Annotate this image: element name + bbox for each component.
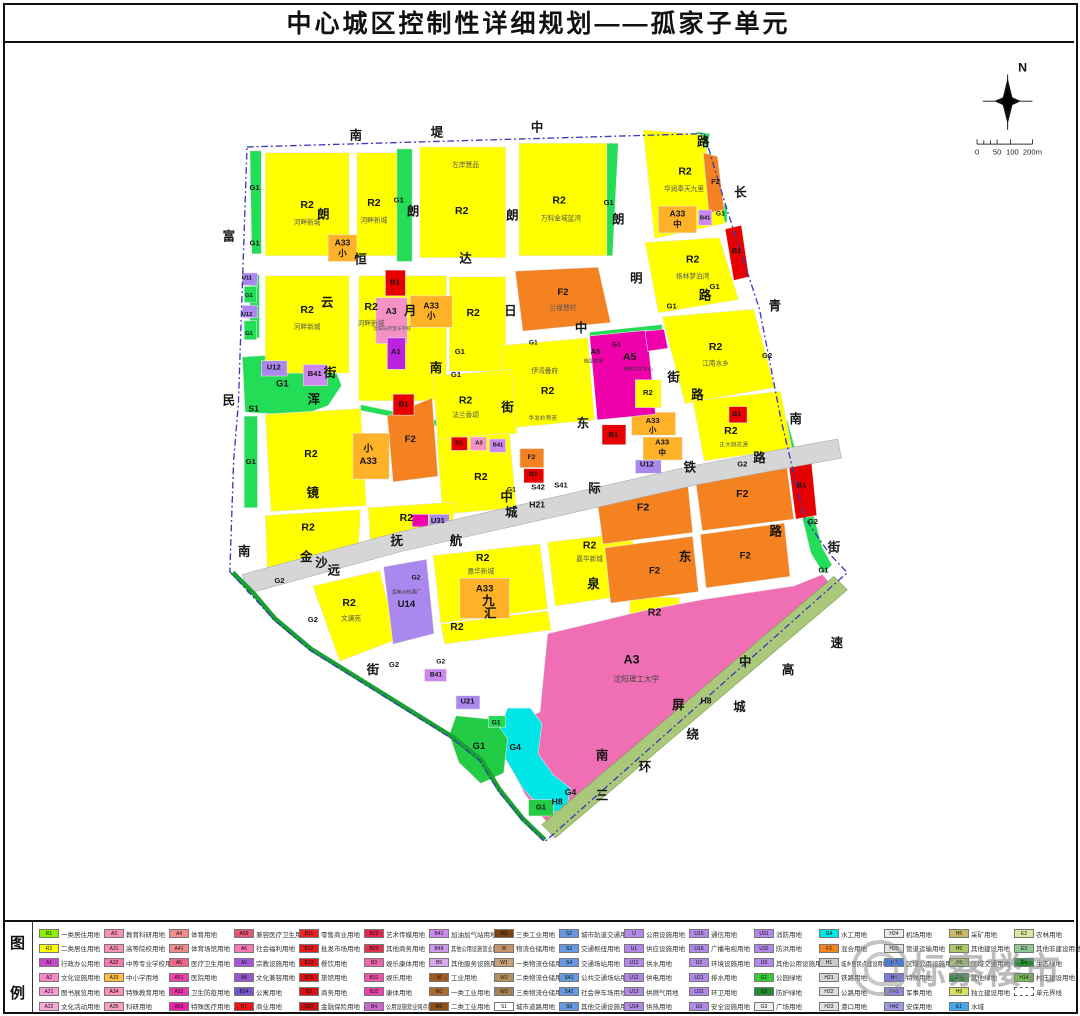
map-label: R2 [678, 167, 692, 178]
legend-swatch: A32 [104, 958, 124, 967]
legend-item: H3区域公用设施用地 [884, 957, 958, 968]
legend-item: G9其他绿地 [949, 972, 997, 983]
legend-swatch: B1 [234, 1002, 254, 1011]
legend-item: H21铁路用地 [819, 972, 867, 983]
legend-label: 安保用地 [906, 1001, 932, 1011]
legend-item: A59兼容医疗卫生用地 [234, 928, 308, 939]
legend-label: 公园绿地 [776, 972, 802, 982]
legend-label: 教育科研用地 [126, 929, 165, 939]
legend-label: 医院用地 [191, 972, 217, 982]
map-label: U12 [242, 312, 253, 318]
legend-swatch: S9 [559, 1002, 579, 1011]
legend-label: 零售商业用地 [321, 929, 360, 939]
legend-label: 交通枢纽用地 [581, 943, 620, 953]
legend-swatch: B22 [364, 929, 384, 938]
map-label: 南 [350, 127, 362, 142]
legend-label: 其他非建设用地 [1036, 943, 1080, 953]
legend-label: 供水用地 [646, 958, 672, 968]
legend-item: H8区域交通用地 [949, 957, 1010, 968]
map-label: G1 [604, 198, 615, 207]
legend-label: 供应设施用地 [646, 943, 685, 953]
map-label: 万科金域蓝湾 [541, 213, 581, 222]
map-label: 浑 [308, 393, 321, 407]
map-label: 华润奉天九里 [664, 184, 704, 193]
map-label: U12 [267, 362, 281, 371]
legend-swatch: A59 [234, 929, 254, 938]
legend-label: 文化设施用地 [61, 972, 100, 982]
legend-item: R2二类居住用地 [39, 943, 100, 954]
map-label: 华发岭秀荟 [529, 414, 558, 422]
map-label: 正大桃花源 [719, 441, 748, 449]
map-label: 东 [577, 416, 589, 431]
legend-label: 一类居住用地 [61, 929, 100, 939]
map-label: B1 [399, 400, 410, 409]
legend-swatch: H1 [819, 958, 839, 967]
legend-item: S9其他交通设施用地 [559, 1001, 633, 1012]
legend-swatch: B12 [299, 944, 319, 953]
map-label: G1 [667, 301, 678, 310]
legend-swatch: G3 [754, 1002, 774, 1011]
legend-label: 商业用地 [256, 1001, 282, 1011]
map-label: 兰缘慧村 [550, 303, 577, 312]
legend-swatch: F2 [819, 944, 839, 953]
legend-item: U22环卫用地 [689, 986, 737, 997]
legend-swatch: B32 [364, 987, 384, 996]
map-label: G1 [451, 370, 462, 379]
map-label: R2 [367, 198, 381, 209]
legend-item: S4交通场站用地 [559, 957, 620, 968]
legend-label: 管道运输用地 [906, 943, 945, 953]
map-label: 堤 [431, 124, 444, 139]
map-label: 金 [299, 549, 313, 564]
map-label: R2 [304, 449, 318, 460]
map-label: G2 [762, 351, 772, 360]
legend-swatch: U22 [689, 987, 709, 996]
map-label: 中 [739, 654, 751, 669]
legend-label: 村庄建设用地 [1036, 972, 1075, 982]
legend-swatch: B11 [299, 929, 319, 938]
legend-label: 特殊教育用地 [126, 987, 165, 997]
map-label: R2 [583, 541, 597, 552]
map-parcel [662, 309, 775, 403]
map-label: A33 [335, 237, 351, 247]
legend-item: U11供水用地 [624, 957, 672, 968]
legend-swatch: E1 [949, 1002, 969, 1011]
legend-item: A3教育科研用地 [104, 928, 165, 939]
legend-item: H14村庄建设用地 [1014, 972, 1075, 983]
map-label: 富 [223, 229, 235, 244]
legend-item: H42安保用地 [884, 1001, 932, 1012]
map-label: 沈阳理工大学 [614, 673, 660, 683]
legend-label: 工业用地 [451, 972, 477, 982]
map-label: A5 [623, 352, 637, 363]
map-label: 朗 [506, 208, 518, 223]
map-label: 环 [639, 760, 651, 774]
legend-swatch: S1 [494, 1002, 514, 1011]
legend-item: H6其他建设用地 [949, 943, 1010, 954]
map-label: 路 [770, 523, 783, 538]
map-label: 中 [531, 120, 543, 135]
map-label: 浑南2#热源厂 [392, 589, 421, 596]
legend-label: 其他绿地 [971, 972, 997, 982]
legend-item: 单元界线 [1014, 986, 1062, 997]
map-label: G4 [509, 742, 521, 752]
map-label: G2 [436, 658, 445, 665]
legend-swatch: U [624, 929, 644, 938]
legend-item: B22艺术传媒用地 [364, 928, 425, 939]
legend-label: 公用设施用地 [646, 929, 685, 939]
legend-item: U公用设施用地 [624, 928, 685, 939]
legend-item: U12供电用地 [624, 972, 672, 983]
legend-item: U1供应设施用地 [624, 943, 685, 954]
map-label: 小 [362, 442, 373, 454]
map-label: G1 [536, 802, 547, 811]
map-label: G2 [274, 576, 284, 585]
map-label: A33 [655, 438, 669, 447]
legend-item: B14公寓用地 [234, 986, 282, 997]
legend-label: 广播电视用地 [711, 943, 750, 953]
legend-swatch: G4 [819, 929, 839, 938]
legend-label: 图书展览用地 [61, 987, 100, 997]
legend-label: 卫生防疫用地 [191, 987, 230, 997]
map-label: 路 [691, 387, 704, 402]
legend-swatch: U9 [754, 958, 774, 967]
legend-label: 旅馆用地 [321, 972, 347, 982]
map-parcel [515, 267, 610, 331]
legend-label: 单元界线 [1036, 987, 1062, 997]
legend-swatch: R1 [39, 929, 59, 938]
map-label: A3 [386, 306, 397, 316]
map-label: G1 [276, 379, 289, 390]
legend-item: U32防洪用地 [754, 943, 802, 954]
map-label: G2 [389, 660, 399, 669]
map-label: G1 [612, 341, 621, 348]
map-label: U12 [640, 460, 654, 469]
legend-label: 生态绿地 [1036, 958, 1062, 968]
legend-item: A5医疗卫生用地 [169, 957, 230, 968]
legend-swatch: H24 [884, 929, 904, 938]
map-label: U14 [398, 599, 416, 610]
legend-label: 城乡居民点建设用地 [841, 958, 888, 968]
legend-label: 机场用地 [906, 929, 932, 939]
legend-item: M1一类工业用地 [429, 986, 490, 997]
legend-item: S1城市道路用地 [494, 1001, 555, 1012]
legend-label: 环境设施用地 [711, 958, 750, 968]
map-label: 法兰香颂 [452, 410, 479, 419]
map-label: S41 [554, 481, 568, 490]
legend-item: S41公共交通场站用地 [559, 972, 633, 983]
map-label: 恒 [354, 251, 367, 266]
map-label: G1 [245, 293, 253, 299]
map-label: G1 [245, 331, 253, 337]
legend-item: W2二类物流仓储用地 [494, 972, 568, 983]
scale-bar: 0 50 100 200m [975, 139, 1042, 156]
map-label: 路 [753, 450, 766, 465]
legend-label: 文化活动用地 [61, 1001, 100, 1011]
legend-item: U15通信用地 [689, 928, 737, 939]
map-label: A3 [624, 652, 640, 666]
legend-label: 行政办公用地 [61, 958, 100, 968]
map-label: R2 [643, 388, 653, 397]
map-label: F2 [405, 434, 416, 445]
legend-item: H9独立建设用地 [949, 986, 1010, 997]
legend-item: A32中等专业学校用地 [104, 957, 178, 968]
legend-swatch: U16 [689, 944, 709, 953]
legend-item: U14供热用地 [624, 1001, 672, 1012]
map-label: 明 [630, 271, 642, 285]
map-label: G1 [246, 457, 257, 466]
map-label: 中 [658, 447, 666, 457]
map-label: R2 [541, 386, 555, 397]
map-label: 云 [321, 295, 333, 309]
legend-swatch: U13 [624, 987, 644, 996]
legend-swatch: W [494, 944, 514, 953]
map-label: 小 [426, 310, 436, 321]
map-label: R2 [301, 523, 315, 534]
legend-label: 公路用地 [841, 987, 867, 997]
legend-item: U9其他公用设施用地 [754, 957, 828, 968]
legend-swatch: A31 [104, 944, 124, 953]
map-label: G1 [455, 347, 466, 356]
legend-swatch: B41 [429, 929, 449, 938]
legend-item: B3娱乐康体用地 [364, 957, 425, 968]
map-label: R2 [648, 608, 662, 619]
legend-swatch: B2 [299, 987, 319, 996]
map-label: 南 [238, 543, 250, 558]
compass-north-label: N [1018, 61, 1027, 75]
legend-item: B41加油加气站用地 [429, 928, 497, 939]
legend-item: R1一类居住用地 [39, 928, 100, 939]
legend-swatch: S4 [559, 958, 579, 967]
map-label: 达 [459, 250, 472, 265]
legend-item: H4特殊用地 [884, 972, 932, 983]
legend-label: 排水用地 [711, 972, 737, 982]
scale-tick-100: 100 [1006, 148, 1019, 157]
legend-swatch: B13 [299, 958, 319, 967]
map-label: G1 [250, 183, 261, 192]
legend-swatch: M1 [429, 987, 449, 996]
map-label: G1 [700, 138, 709, 145]
map-label: 沙 [315, 556, 328, 570]
legend-item: G2防护绿地 [754, 986, 802, 997]
legend-item: S42社会停车场用地 [559, 986, 627, 997]
legend-swatch: G2 [754, 987, 774, 996]
legend-item: A51医院用地 [169, 972, 217, 983]
legend-label: 艺术传媒用地 [386, 929, 425, 939]
legend-swatch: W1 [494, 958, 514, 967]
legend-swatch: A53 [169, 1002, 189, 1011]
legend-swatch: A9 [234, 958, 254, 967]
map-label: F2 [649, 566, 660, 577]
map-label: G1 [492, 719, 501, 726]
map-label: R2 [450, 622, 464, 633]
legend-label: 独立建设用地 [971, 987, 1010, 997]
legend-item: A34特殊教育用地 [104, 986, 165, 997]
planning-map: N 0 50 100 200m 南堤中路朗朗朗朗云月日明路恒达富民南浑街南街东中… [0, 42, 1080, 920]
legend-item: A9宗教设施用地 [234, 957, 295, 968]
legend-item: W1一类物流仓储用地 [494, 957, 568, 968]
legend-swatch: H41 [884, 987, 904, 996]
legend-label: 采矿用地 [971, 929, 997, 939]
legend-swatch: A5 [169, 958, 189, 967]
map-label: 青 [769, 298, 781, 313]
map-label: H21 [529, 500, 545, 510]
legend-swatch: U21 [689, 973, 709, 982]
legend-item: A22文化活动用地 [39, 1001, 100, 1012]
legend-swatch: A21 [39, 987, 59, 996]
map-label: 小 [648, 424, 657, 434]
legend-swatch: A41 [169, 944, 189, 953]
map-label: 城 [733, 699, 746, 714]
map-label: R2 [400, 513, 414, 524]
legend-swatch: A34 [104, 987, 124, 996]
map-label: 陆军总院 [584, 358, 603, 365]
legend-item: B9其他服务设施用地 [429, 957, 503, 968]
map-label: G4 [565, 787, 577, 797]
legend-label: 批发市场用地 [321, 943, 360, 953]
legend-label: 环卫用地 [711, 987, 737, 997]
legend-swatch: U11 [624, 958, 644, 967]
legend-label: 医疗卫生用地 [191, 958, 230, 968]
map-label: A33 [646, 416, 660, 425]
map-label: B1 [732, 411, 741, 418]
map-label: R2 [724, 426, 738, 437]
legend-swatch: H42 [884, 1002, 904, 1011]
legend-label: 体育场馆用地 [191, 943, 230, 953]
map-label: R2 [474, 472, 488, 483]
map-label: F2 [637, 503, 649, 514]
map-svg: N 0 50 100 200m 南堤中路朗朗朗朗云月日明路恒达富民南浑街南街东中… [0, 42, 1080, 920]
legend-item: M工业用地 [429, 972, 477, 983]
legend-label: 安全设施用地 [711, 1001, 750, 1011]
legend-label: 特殊医疗用地 [191, 1001, 230, 1011]
legend-item: B2商务用地 [299, 986, 347, 997]
map-label: 精神卫生中心 [624, 365, 653, 372]
legend-label: 加油加气站用地 [451, 929, 497, 939]
legend-item: A53特殊医疗用地 [169, 1001, 230, 1012]
legend-label: 水域 [971, 1001, 984, 1011]
map-label: 南 [430, 360, 442, 375]
legend-item: A52卫生防疫用地 [169, 986, 230, 997]
legend-item: B13餐饮用地 [299, 957, 347, 968]
legend-item: B21金融保险用地 [299, 1001, 360, 1012]
legend-label: 社会福利用地 [256, 943, 295, 953]
map-label: R2 [364, 302, 378, 313]
legend-swatch: A33 [104, 973, 124, 982]
map-label: H8 [552, 797, 563, 807]
map-label: R2 [466, 308, 480, 319]
legend-swatch: M2 [429, 1002, 449, 1011]
map-label: 文澜苑 [341, 613, 361, 622]
legend-swatch: U12 [624, 973, 644, 982]
legend-label: 娱乐用地 [386, 972, 412, 982]
legend-item: G1公园绿地 [754, 972, 802, 983]
map-label: A1 [391, 347, 402, 356]
map-label: 街 [500, 399, 514, 414]
legend-swatch: H3 [884, 958, 904, 967]
legend-label: 防洪用地 [776, 943, 802, 953]
legend-item: H5采矿用地 [949, 928, 997, 939]
legend-swatch: A4 [169, 929, 189, 938]
legend-swatch: U32 [754, 944, 774, 953]
page-title: 中心城区控制性详细规划——孤家子单元 [3, 3, 1074, 43]
map-label: B41 [493, 443, 504, 449]
scale-tick-0: 0 [975, 148, 979, 157]
map-label: R2 [300, 200, 314, 211]
legend-item: W物流仓储用地 [494, 943, 555, 954]
legend-label: 通信用地 [711, 929, 737, 939]
legend-swatch: M [429, 973, 449, 982]
map-label: 嘉华新城 [576, 554, 603, 563]
legend-swatch: U2 [689, 958, 709, 967]
legend-swatch: B14 [234, 987, 254, 996]
legend-swatch: A51 [169, 973, 189, 982]
legend-swatch: B29 [364, 944, 384, 953]
legend-swatch: H5 [949, 929, 969, 938]
legend-label: 其他商务用地 [386, 943, 425, 953]
legend-label: 科研用地 [126, 1001, 152, 1011]
legend-item: M3三类工业用地 [494, 928, 555, 939]
legend-swatch: B9 [429, 958, 449, 967]
legend-swatch: E2 [1014, 929, 1034, 938]
map-label: A5 [590, 347, 601, 356]
legend-label: 特殊用地 [906, 972, 932, 982]
map-label: 河畔新城 [358, 318, 385, 327]
legend-label: 混合用地 [841, 943, 867, 953]
legend-swatch: U15 [689, 929, 709, 938]
map-label: G1 [818, 566, 829, 575]
legend-item: A35科研用地 [104, 1001, 152, 1012]
legend-swatch: A8 [234, 973, 254, 982]
legend-swatch: H21 [819, 973, 839, 982]
legend-item: B31娱乐用地 [364, 972, 412, 983]
map-label: 南 [790, 411, 802, 426]
map-label: G1 [250, 238, 261, 247]
legend-item: A41体育场馆用地 [169, 943, 230, 954]
map-label: R2 [459, 396, 473, 407]
map-label: G1 [529, 340, 538, 347]
legend-swatch: H9 [949, 987, 969, 996]
legend-item: G4水工用地 [819, 928, 867, 939]
legend-swatch: B3 [364, 958, 384, 967]
map-label: 民 [223, 394, 235, 408]
legend-swatch: A2 [39, 973, 59, 982]
map-label: R2 [342, 598, 356, 609]
map-label: G2 [737, 460, 747, 469]
legend-swatch: M3 [494, 929, 514, 938]
legend-label: 商务用地 [321, 987, 347, 997]
map-label: 街 [323, 365, 337, 380]
legend-swatch: H22 [819, 987, 839, 996]
map-label: H8 [701, 695, 712, 705]
map-label: 远 [328, 564, 341, 578]
legend-label: 城市道路用地 [516, 1001, 555, 1011]
scale-tick-50: 50 [993, 148, 1001, 157]
legend-label: 宗教设施用地 [256, 958, 295, 968]
legend-item: U13供燃气用地 [624, 986, 679, 997]
map-label: A33 [670, 209, 686, 219]
legend-label: 餐饮用地 [321, 958, 347, 968]
legend-label: 广场用地 [776, 1001, 802, 1011]
map-label: 街 [666, 370, 680, 385]
legend-label: 中小学用地 [126, 972, 159, 982]
map-label: B41 [430, 672, 443, 679]
legend-swatch: W3 [494, 987, 514, 996]
legend-item: U31消防用地 [754, 928, 802, 939]
map-label: 河畔新城 [294, 322, 321, 331]
legend-swatch: R2 [39, 944, 59, 953]
map-label: 铁 [684, 459, 697, 474]
